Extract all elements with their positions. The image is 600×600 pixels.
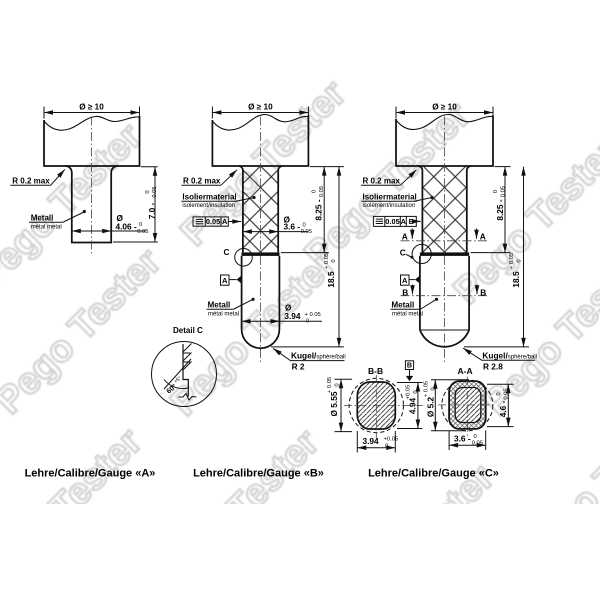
svg-text:0: 0 xyxy=(516,259,522,262)
svg-text:Isoliermaterial: Isoliermaterial xyxy=(363,192,417,201)
svg-text:C: C xyxy=(224,247,230,257)
svg-text:0: 0 xyxy=(312,190,318,193)
svg-text:R 2: R 2 xyxy=(292,362,305,372)
svg-text:Pego Tester: Pego Tester xyxy=(513,393,600,575)
svg-text:0: 0 xyxy=(474,434,477,440)
svg-text:R 0.2 max: R 0.2 max xyxy=(183,177,221,186)
svg-text:A: A xyxy=(402,276,408,285)
svg-text:18.5: 18.5 xyxy=(326,271,336,288)
svg-text:B-B: B-B xyxy=(368,366,383,376)
svg-text:isolement/insulation: isolement/insulation xyxy=(182,203,235,209)
svg-text:Metall: Metall xyxy=(208,300,231,309)
svg-text:0.05: 0.05 xyxy=(152,186,158,197)
svg-text:Pego Tester: Pego Tester xyxy=(146,422,328,600)
svg-text:B: B xyxy=(409,217,414,226)
svg-text:Lehre/Calibre/Gauge «C»: Lehre/Calibre/Gauge «C» xyxy=(368,467,499,479)
svg-text:Ø 5.55: Ø 5.55 xyxy=(329,391,339,416)
svg-text:Pego Tester: Pego Tester xyxy=(0,421,150,600)
svg-text:0.05: 0.05 xyxy=(319,186,325,197)
svg-text:4.6 -: 4.6 - xyxy=(498,400,508,417)
svg-text:0.05: 0.05 xyxy=(472,441,483,447)
svg-text:+ 0.05: + 0.05 xyxy=(423,381,429,397)
svg-text:Ø 5.2: Ø 5.2 xyxy=(425,396,435,417)
svg-text:+ 0.05: + 0.05 xyxy=(327,377,333,393)
svg-text:B: B xyxy=(407,361,412,370)
svg-text:B: B xyxy=(480,287,486,297)
svg-text:A: A xyxy=(401,217,407,226)
svg-text:+ 0.05: + 0.05 xyxy=(324,253,330,269)
svg-text:Metall: Metall xyxy=(392,300,415,309)
svg-text:0.05: 0.05 xyxy=(503,388,509,399)
svg-text:0: 0 xyxy=(496,392,502,395)
svg-text:0: 0 xyxy=(493,190,499,193)
svg-text:Ø ≥ 10: Ø ≥ 10 xyxy=(432,102,457,111)
svg-text:Metall: Metall xyxy=(31,213,54,222)
svg-text:métal metal: métal metal xyxy=(208,311,239,317)
svg-text:3.94: 3.94 xyxy=(363,436,380,446)
svg-text:Isoliermaterial: Isoliermaterial xyxy=(182,192,236,201)
svg-text:0: 0 xyxy=(303,222,306,228)
svg-text:Detail C: Detail C xyxy=(173,326,203,335)
svg-text:0: 0 xyxy=(413,390,419,393)
svg-text:A-A: A-A xyxy=(458,366,473,376)
svg-text:métal metal: métal metal xyxy=(31,224,62,230)
svg-text:R 0.2 max: R 0.2 max xyxy=(12,177,50,186)
svg-text:A: A xyxy=(402,232,408,242)
svg-text:métal metal: métal metal xyxy=(392,311,423,317)
svg-text:3.6 -: 3.6 - xyxy=(284,222,301,232)
svg-text:3.94: 3.94 xyxy=(284,311,301,321)
svg-text:+ 0.05: + 0.05 xyxy=(305,312,321,318)
svg-text:R 2.8: R 2.8 xyxy=(483,361,503,371)
svg-text:0: 0 xyxy=(145,190,151,193)
svg-text:18.5: 18.5 xyxy=(511,271,521,288)
svg-text:0.05: 0.05 xyxy=(500,186,506,197)
svg-text:C: C xyxy=(400,248,406,258)
svg-text:8.25 -: 8.25 - xyxy=(314,199,324,220)
svg-text:+0.05: +0.05 xyxy=(384,437,399,443)
svg-text:A: A xyxy=(222,217,228,226)
svg-text:Ø ≥ 10: Ø ≥ 10 xyxy=(79,102,104,111)
svg-text:0: 0 xyxy=(334,383,340,386)
svg-text:A: A xyxy=(480,232,486,242)
svg-text:3.6 -: 3.6 - xyxy=(454,433,471,443)
svg-text:7.0 -: 7.0 - xyxy=(147,202,157,219)
svg-text:R 0.2 max: R 0.2 max xyxy=(363,177,401,186)
svg-text:Lehre/Calibre/Gauge «A»: Lehre/Calibre/Gauge «A» xyxy=(25,467,156,479)
svg-text:0.05: 0.05 xyxy=(137,229,148,235)
svg-text:A: A xyxy=(222,276,228,285)
svg-text:Lehre/Calibre/Gauge «B»: Lehre/Calibre/Gauge «B» xyxy=(193,467,324,479)
svg-text:0: 0 xyxy=(431,387,437,390)
svg-text:4.06 -: 4.06 - xyxy=(116,222,137,232)
svg-text:+ 0.05: + 0.05 xyxy=(509,253,515,269)
svg-text:0.05: 0.05 xyxy=(206,217,220,226)
svg-text:Kugel/sphère/ball: Kugel/sphère/ball xyxy=(291,351,346,361)
svg-text:8.25 -: 8.25 - xyxy=(495,199,505,220)
svg-text:0: 0 xyxy=(331,259,337,262)
svg-text:isolement/insulation: isolement/insulation xyxy=(363,203,416,209)
svg-text:Ø ≥ 10: Ø ≥ 10 xyxy=(248,102,273,111)
svg-text:+0.05: +0.05 xyxy=(406,385,412,400)
svg-text:0: 0 xyxy=(139,222,142,228)
svg-text:0.05: 0.05 xyxy=(385,217,399,226)
svg-text:0: 0 xyxy=(385,443,388,449)
